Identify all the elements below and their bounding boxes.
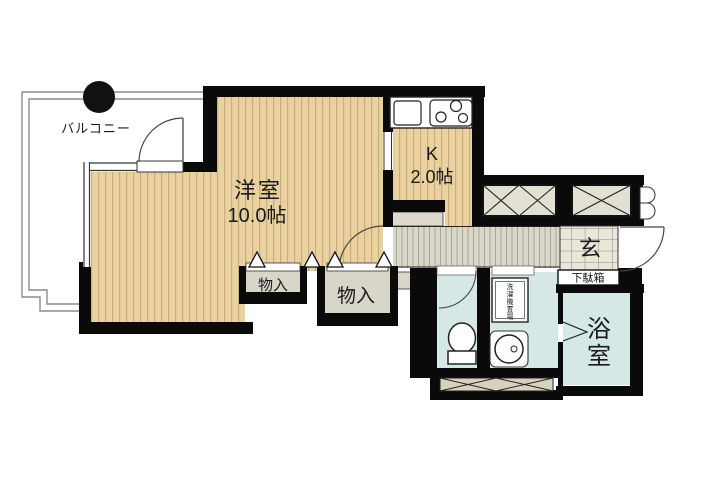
balcony-door-swing-icon (139, 118, 183, 162)
burner-icon (459, 114, 468, 123)
svg-text:濯: 濯 (507, 290, 514, 299)
storage-box-left (483, 185, 556, 216)
corridor-step (386, 212, 443, 226)
balcony-door-sill (137, 161, 183, 172)
kitchen-size: 2.0帖 (410, 167, 453, 187)
western-room-label: 洋室 (234, 178, 282, 203)
closets: 物入 物入 (239, 252, 398, 326)
burner-icon (451, 101, 462, 112)
closet-right-label: 物入 (337, 285, 375, 307)
toilet-icon (449, 323, 476, 353)
washroom-doorway (492, 266, 534, 275)
storage-door-flap-bottom-icon (640, 203, 655, 219)
shoe-cabinet-label: 下駄箱 (572, 271, 605, 285)
balcony-pole-icon (83, 81, 115, 113)
floorplan-svg: バルコニー (0, 0, 720, 480)
floorplan-page: バルコニー (0, 0, 720, 480)
entrance-area: 玄 下駄箱 (558, 226, 664, 285)
bathroom-label-char-0: 浴 (587, 316, 611, 343)
washing-machine-label: 洗 濯 機 置 場 (507, 282, 514, 321)
corridor (392, 226, 560, 268)
entrance-label: 玄 (579, 236, 601, 261)
entrance-door-swing-icon (620, 227, 664, 271)
svg-text:洗: 洗 (507, 282, 514, 291)
bathroom-label-char-1: 室 (587, 343, 611, 370)
hatch-strip (440, 378, 553, 391)
kitchen-sink-icon (394, 101, 421, 125)
svg-text:場: 場 (507, 312, 514, 321)
burner-icon (436, 112, 446, 122)
western-room-size: 10.0帖 (228, 204, 287, 227)
closet-left-label: 物入 (258, 277, 288, 294)
kitchen-label: K (426, 144, 438, 164)
storage-door-flap-top-icon (640, 187, 655, 203)
washbasin-icon (495, 335, 523, 363)
toilet-doorway (437, 266, 476, 275)
svg-text:置: 置 (507, 306, 514, 314)
svg-text:機: 機 (507, 297, 514, 306)
balcony-label: バルコニー (61, 121, 131, 136)
toilet-tank-icon (448, 351, 476, 364)
washroom: 洗 濯 機 置 場 (490, 278, 528, 367)
